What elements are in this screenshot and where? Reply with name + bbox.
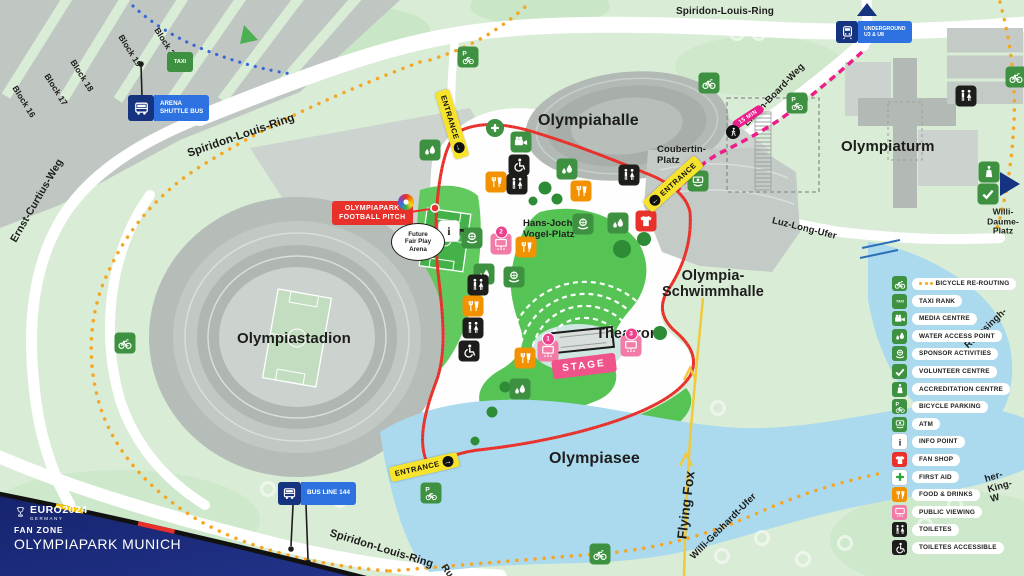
tree-icon [637, 232, 651, 246]
drops-icon [608, 213, 629, 234]
legend-item-sponsor-activities: SPONSOR ACTIVITIES [892, 346, 998, 361]
lawn-circle [795, 551, 811, 567]
legend-item-bicycle-re-routing: BICYCLE RE-ROUTING [892, 276, 1016, 291]
tree-icon [613, 240, 631, 258]
bikeP-icon [787, 93, 808, 114]
legend-label: BICYCLE PARKING [919, 403, 981, 410]
info-icon [892, 434, 907, 449]
tree-icon [539, 182, 552, 195]
bike-icon [699, 73, 720, 94]
plus-icon [892, 470, 907, 485]
wheelchair-icon [509, 155, 530, 176]
label-olympiastadion: Olympiastadion [237, 331, 351, 348]
bus-icon [128, 95, 154, 121]
arena-shuttle-bus-badge: ARENA SHUTTLE BUS [128, 95, 209, 121]
food-icon [571, 181, 592, 202]
legend-label: PUBLIC VIEWING [919, 509, 975, 516]
legend-label: ACCREDITATION CENTRE [919, 386, 1003, 393]
accred-icon [892, 382, 907, 397]
food-icon [486, 172, 507, 193]
wc-icon [956, 86, 977, 107]
lawn-circle [714, 548, 730, 564]
banner-title: OLYMPIAPARK MUNICH [14, 536, 181, 552]
bike-icon [892, 276, 907, 291]
arrow-icon: → [441, 455, 454, 468]
legend-item-toiletes-accessible: TOILETES ACCESSIBLE [892, 540, 1004, 555]
camera-icon [892, 311, 907, 326]
tree-icon [471, 437, 480, 446]
legend-item-public-viewing: PUBLIC VIEWING [892, 505, 982, 520]
bike-icon [1006, 67, 1024, 88]
trophy-icon [14, 506, 27, 524]
drops-icon [892, 329, 907, 344]
wc-icon [892, 522, 907, 537]
olympiapark-map: TAXI ARENA SHUTTLE BUS UNDERGROUND U3 & … [0, 0, 1024, 576]
tree-icon [653, 326, 667, 340]
bus-line-label: BUS LINE 144 [301, 482, 356, 505]
wc-icon [468, 275, 489, 296]
bikeP-icon [421, 483, 442, 504]
legend-label: TOILETES [919, 526, 952, 533]
arena-shuttle-line2: SHUTTLE BUS [160, 108, 203, 116]
accred-icon [979, 162, 1000, 183]
legend-item-atm: ATM [892, 417, 940, 432]
arena-shuttle-line1: ARENA [160, 100, 203, 108]
sponsor-icon [504, 267, 525, 288]
food-icon [515, 348, 536, 369]
legend-item-first-aid: FIRST AID [892, 470, 959, 485]
wheelchair-icon [892, 540, 907, 555]
label-olympiasee: Olympiasee [549, 450, 640, 468]
fan-zone-label: FAN ZONE [14, 525, 181, 535]
legend-item-info-point: INFO POINT [892, 434, 965, 449]
bike-icon [115, 333, 136, 354]
food-icon [516, 237, 537, 258]
check-icon [892, 364, 907, 379]
wc-icon [507, 174, 528, 195]
atm-icon [892, 417, 907, 432]
legend-label: SPONSOR ACTIVITIES [919, 350, 991, 357]
lawn-circle [710, 400, 726, 416]
check-icon [978, 184, 999, 205]
public-viewing-number: 2 [495, 226, 508, 239]
legend-label: FOOD & DRINKS [919, 491, 973, 498]
legend-label: TAXI RANK [919, 298, 955, 305]
screen-icon: 2 [491, 234, 512, 255]
euro2024-logo-icon [398, 194, 414, 210]
label-spiridon-louis-ring-top: Spiridon-Louis-Ring [676, 6, 774, 17]
drops-icon [557, 159, 578, 180]
shirt-icon [892, 452, 907, 467]
legend-item-media-centre: MEDIA CENTRE [892, 311, 977, 326]
lawn-circle [837, 535, 853, 551]
pedestrian-icon [726, 125, 740, 139]
taxi-badge: TAXI [167, 52, 193, 72]
legend-item-volunteer-centre: VOLUNTEER CENTRE [892, 364, 997, 379]
flag-icon [455, 225, 470, 240]
train-icon [836, 21, 858, 43]
wc-icon [619, 165, 640, 186]
label-olympiaturm: Olympiaturm [841, 139, 935, 156]
map-base-artwork [0, 0, 1024, 576]
legend-label: TOILETES ACCESSIBLE [919, 544, 997, 551]
legend-label: FAN SHOP [919, 456, 953, 463]
screen-icon [892, 505, 907, 520]
legend-label: MEDIA CENTRE [919, 315, 970, 322]
legend-item-accreditation-centre: ACCREDITATION CENTRE [892, 382, 1010, 397]
lawn-circle [260, 481, 276, 497]
underground-line2: U3 & U8 [864, 32, 906, 39]
bus-icon [278, 482, 301, 505]
lawn-circle [729, 25, 745, 41]
legend-label: FIRST AID [919, 474, 952, 481]
euro2024-wordmark: EURO2024 [30, 504, 88, 516]
food-icon [463, 296, 484, 317]
wc-icon [463, 318, 484, 339]
drops-icon [420, 140, 441, 161]
sponsor-icon [573, 214, 594, 235]
legend-label: BICYCLE RE-ROUTING [936, 280, 1010, 287]
bikeP-icon [892, 399, 907, 414]
screen-icon: 1 [538, 341, 559, 362]
public-viewing-number: 1 [542, 333, 555, 346]
fan-zone-banner-text: EURO2024 GERMANY FAN ZONE OLYMPIAPARK MU… [14, 504, 181, 552]
underground-badge: UNDERGROUND U3 & U8 [836, 21, 912, 43]
plus-icon [486, 119, 504, 137]
tree-icon [487, 407, 498, 418]
label-olympia-schwimmhalle: Olympia- Schwimmhalle [662, 268, 764, 300]
legend-item-food-drinks: FOOD & DRINKS [892, 487, 980, 502]
bike-icon [590, 544, 611, 565]
label-olympiahalle: Olympiahalle [538, 112, 639, 130]
public-viewing-number: 3 [625, 328, 638, 341]
legend-label: ATM [919, 421, 933, 428]
bus-line-badge: BUS LINE 144 [278, 482, 356, 505]
lawn-circle [754, 530, 770, 546]
legend-item-water-access-point: WATER ACCESS POINT [892, 329, 1002, 344]
arrow-icon: → [452, 140, 466, 154]
tree-icon [529, 197, 538, 206]
tree-icon [552, 194, 563, 205]
sponsor-icon [892, 346, 907, 361]
legend-label: VOLUNTEER CENTRE [919, 368, 990, 375]
legend-item-toiletes: TOILETES [892, 522, 959, 537]
legend-label: INFO POINT [919, 438, 958, 445]
taxi-icon [892, 294, 907, 309]
drops-icon [510, 379, 531, 400]
screen-icon: 3 [621, 336, 642, 357]
legend-item-taxi-rank: TAXI RANK [892, 294, 962, 309]
legend-item-bicycle-parking: BICYCLE PARKING [892, 399, 988, 414]
legend-item-fan-shop: FAN SHOP [892, 452, 960, 467]
legend-label: WATER ACCESS POINT [919, 333, 995, 340]
future-fair-play-arena-badge: Future Fair Play Arena [391, 223, 445, 261]
label-willi-daume-platz: Willi- Daume- Platz [987, 208, 1019, 237]
food-icon [892, 487, 907, 502]
shirt-icon [636, 211, 657, 232]
bikeP-icon [458, 47, 479, 68]
euro2024-germany: GERMANY [30, 516, 88, 521]
wheelchair-icon [459, 341, 480, 362]
camera-icon [511, 132, 532, 153]
lawn-circle [751, 25, 767, 41]
